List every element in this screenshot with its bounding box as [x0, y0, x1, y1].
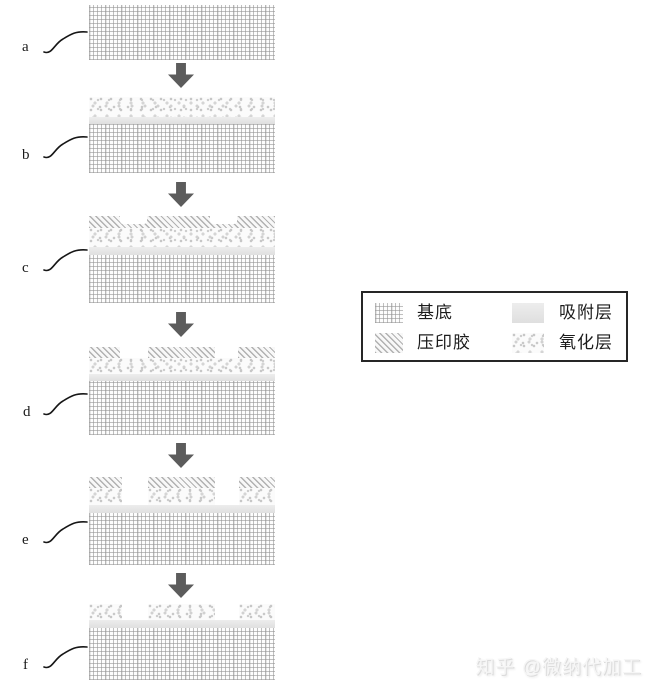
imprint-resist-segment — [148, 477, 215, 488]
adsorption-layer — [89, 374, 275, 381]
legend-label-resist: 压印胶 — [417, 333, 471, 353]
watermark-text: 知乎 @微纳代加工 — [475, 652, 642, 679]
leader-line-b — [43, 134, 89, 160]
substrate-layer — [89, 255, 275, 303]
adsorption-layer — [89, 505, 275, 513]
down-arrow-icon — [168, 573, 194, 598]
substrate-layer — [89, 5, 275, 60]
down-arrow-icon — [168, 443, 194, 468]
legend-label-oxide: 氧化层 — [559, 333, 613, 353]
substrate-layer — [89, 513, 275, 565]
imprint-recess — [210, 215, 237, 224]
leader-line-a — [43, 29, 89, 55]
substrate-layer — [89, 381, 275, 435]
step-label-f: f — [23, 658, 28, 673]
legend-label-substrate: 基底 — [417, 303, 453, 323]
step-label-a: a — [22, 40, 29, 55]
leader-line-f — [43, 644, 89, 670]
imprint-resist-segment — [148, 347, 215, 358]
oxide-segment — [148, 488, 215, 505]
step-label-c: c — [22, 261, 29, 276]
legend-swatch-adsorption — [512, 303, 544, 323]
oxide-layer — [89, 358, 275, 374]
imprint-resist-segment — [239, 477, 275, 488]
legend-swatch-substrate — [375, 303, 403, 323]
oxide-segment — [148, 604, 215, 620]
process-diagram: a b c d e f — [0, 0, 662, 698]
imprint-recess — [120, 215, 147, 224]
oxide-segment — [239, 604, 275, 620]
legend-label-adsorption: 吸附层 — [559, 303, 613, 323]
adsorption-layer — [89, 620, 275, 628]
down-arrow-icon — [168, 182, 194, 207]
legend-swatch-resist — [375, 333, 403, 353]
imprint-resist-segment — [89, 347, 120, 358]
oxide-layer — [89, 228, 275, 247]
oxide-segment — [89, 488, 122, 505]
step-label-e: e — [22, 533, 29, 548]
imprint-resist-layer — [89, 216, 275, 228]
step-label-d: d — [23, 405, 31, 420]
step-label-b: b — [22, 148, 30, 163]
down-arrow-icon — [168, 312, 194, 337]
oxide-segment — [239, 488, 275, 505]
legend-box: 基底 吸附层 压印胶 氧化层 — [361, 291, 628, 362]
leader-line-d — [43, 391, 89, 417]
leader-line-c — [43, 247, 89, 273]
substrate-layer — [89, 628, 275, 680]
imprint-resist-segment — [238, 347, 275, 358]
imprint-resist-segment — [89, 477, 122, 488]
adsorption-layer — [89, 247, 275, 255]
substrate-layer — [89, 124, 275, 173]
adsorption-layer — [89, 117, 275, 124]
oxide-segment — [89, 604, 122, 620]
legend-swatch-oxide — [512, 333, 544, 353]
leader-line-e — [43, 519, 89, 545]
down-arrow-icon — [168, 63, 194, 88]
oxide-layer — [89, 97, 275, 117]
